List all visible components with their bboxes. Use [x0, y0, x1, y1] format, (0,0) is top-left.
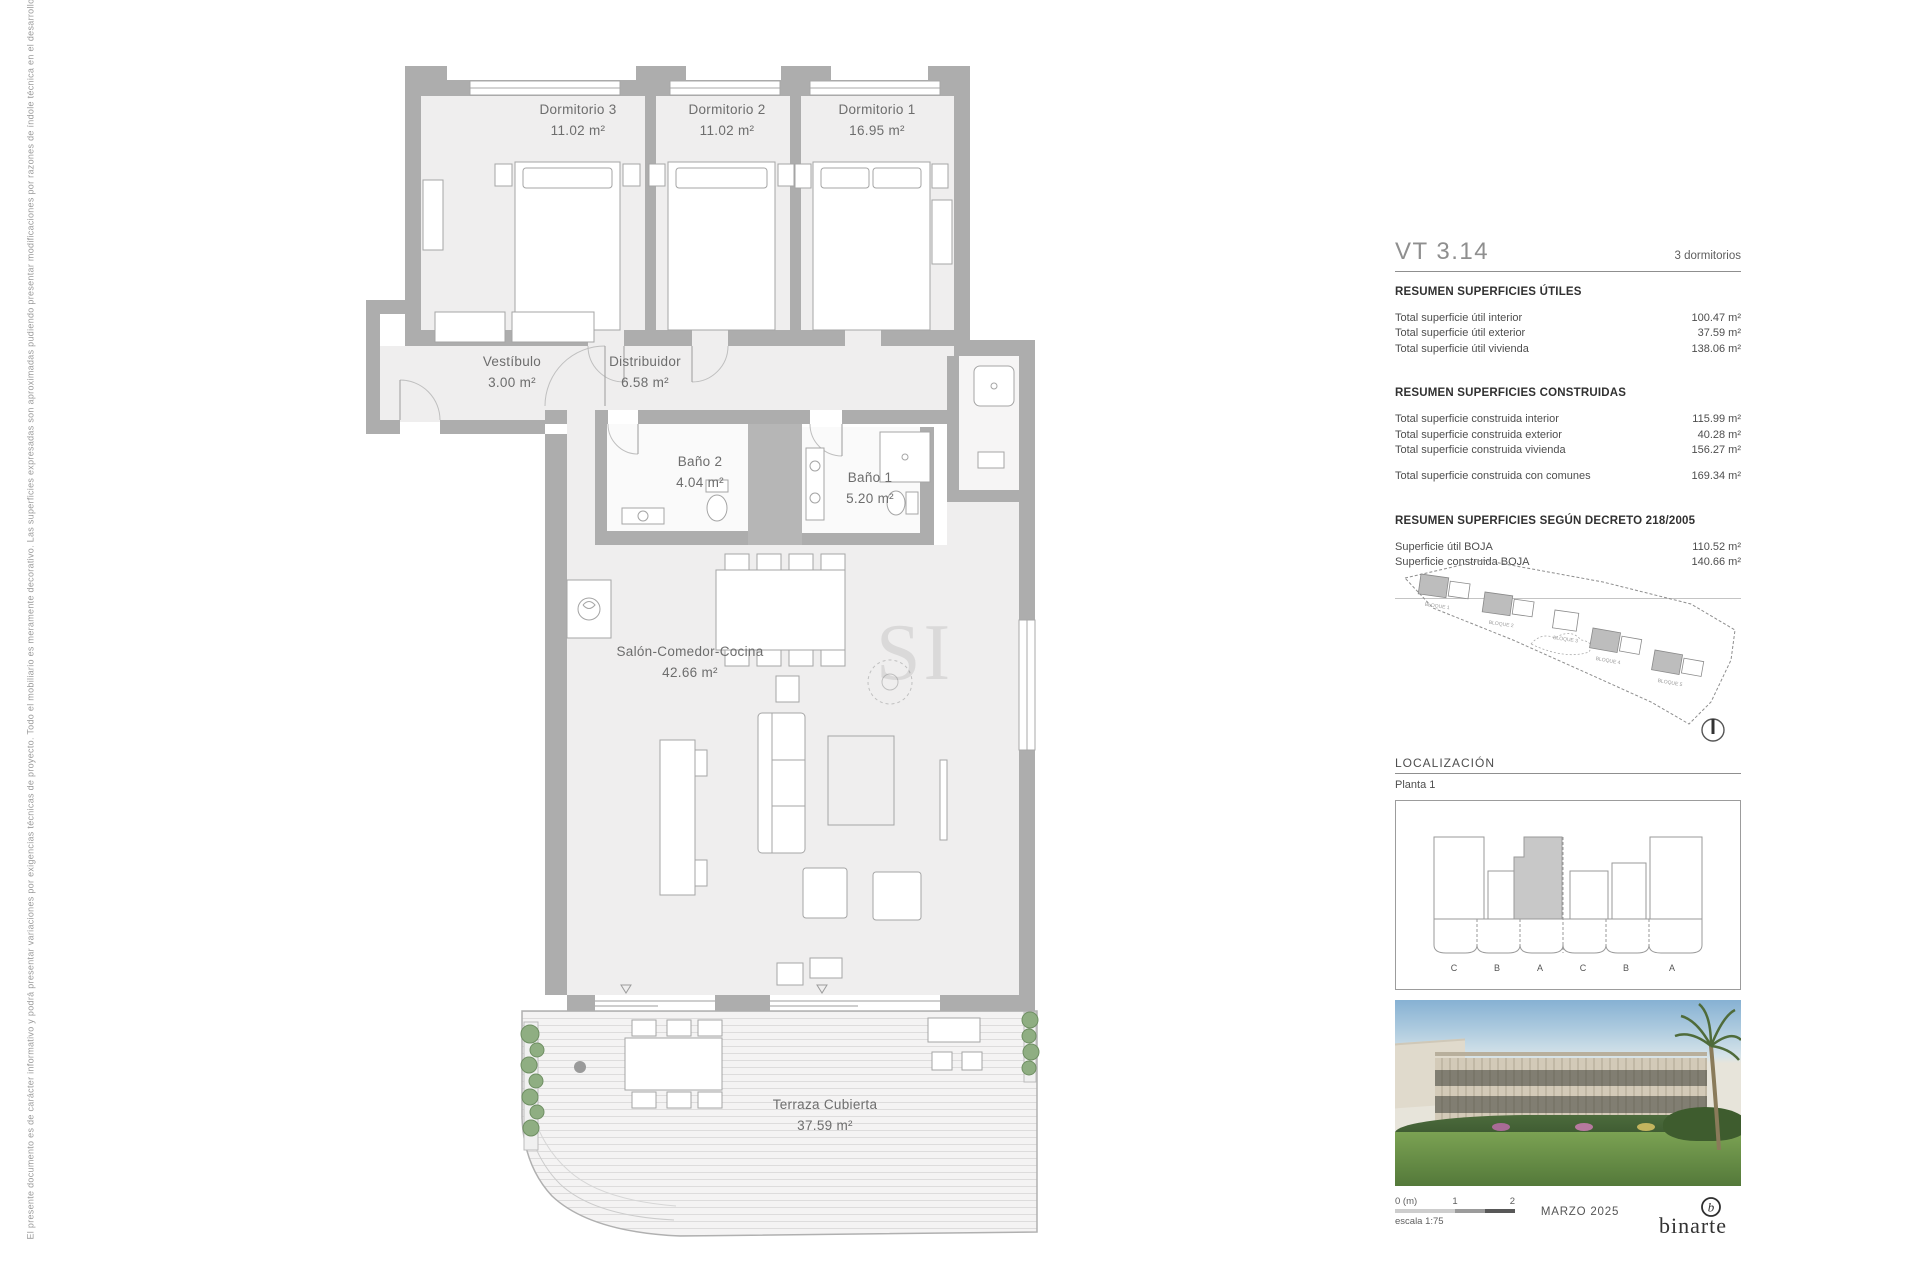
surface-row: Total superficie útil interior 100.47 m²	[1395, 311, 1741, 326]
surface-row: Total superficie útil exterior 37.59 m²	[1395, 326, 1741, 341]
row-label: Total superficie construida vivienda	[1395, 443, 1566, 458]
photo-flowers	[1492, 1123, 1510, 1131]
site-block-label: BLOQUE 4	[1595, 656, 1621, 666]
scale-zero: 0 (m)	[1395, 1196, 1417, 1207]
row-label: Total superficie construida exterior	[1395, 428, 1562, 443]
unit-letter: C	[1451, 963, 1458, 973]
row-value: 115.99 m²	[1692, 412, 1741, 427]
row-value: 100.47 m²	[1691, 311, 1741, 326]
room-name: Terraza Cubierta	[773, 1095, 878, 1116]
scale-text: escala 1:75	[1395, 1216, 1515, 1227]
row-value: 169.34 m²	[1691, 469, 1741, 484]
room-area: 11.02 m²	[539, 121, 616, 142]
planta-diagram-box: C B A C B A	[1395, 800, 1741, 990]
row-value: 156.27 m²	[1691, 443, 1741, 458]
room-name: Distribuidor	[609, 352, 681, 373]
section-title-decreto: RESUMEN SUPERFICIES SEGÚN DECRETO 218/20…	[1395, 515, 1741, 527]
section-rows-utiles: Total superficie útil interior 100.47 m²…	[1395, 311, 1741, 357]
watermark: SI	[876, 608, 953, 699]
room-label-bano-1: Baño 1 5.20 m²	[846, 468, 894, 510]
room-area: 4.04 m²	[676, 473, 724, 494]
unit-letter: C	[1580, 963, 1587, 973]
unit-header: VT 3.14 3 dormitorios	[1395, 238, 1741, 272]
room-name: Vestíbulo	[483, 352, 541, 373]
site-blocks: BLOQUE 1 BLOQUE 2 BLOQUE 3 BLOQUE 4 BLOQ…	[1416, 574, 1704, 691]
unit-letter: A	[1537, 963, 1543, 973]
section-title-utiles: RESUMEN SUPERFICIES ÚTILES	[1395, 286, 1741, 298]
room-area: 37.59 m²	[773, 1116, 878, 1137]
section-title-construidas: RESUMEN SUPERFICIES CONSTRUIDAS	[1395, 387, 1741, 399]
sheet-footer: 0 (m) 1 2 escala 1:75 MARZO 2025 b binar…	[1395, 1196, 1741, 1239]
row-label: Total superficie construida interior	[1395, 412, 1559, 427]
scale-one: 1	[1452, 1196, 1457, 1207]
room-label-terraza: Terraza Cubierta 37.59 m²	[773, 1095, 878, 1137]
palm-tree-icon	[1671, 1000, 1741, 1150]
row-label: Total superficie útil vivienda	[1395, 342, 1529, 357]
room-area: 42.66 m²	[616, 663, 763, 684]
unit-code: VT 3.14	[1395, 238, 1489, 266]
site-block-label: BLOQUE 1	[1424, 602, 1450, 611]
surface-row: Total superficie construida exterior 40.…	[1395, 428, 1741, 443]
site-block-label: BLOQUE 2	[1488, 620, 1514, 629]
room-name: Salón-Comedor-Cocina	[616, 642, 763, 663]
north-indicator-icon	[1702, 719, 1724, 741]
site-block-label: BLOQUE 3	[1553, 635, 1579, 644]
row-value: 37.59 m²	[1698, 326, 1741, 341]
room-area: 5.20 m²	[846, 489, 894, 510]
room-area: 6.58 m²	[609, 373, 681, 394]
site-block-label: BLOQUE 5	[1657, 678, 1683, 688]
room-name: Baño 2	[676, 452, 724, 473]
room-label-dormitorio-3: Dormitorio 3 11.02 m²	[539, 100, 616, 142]
room-area: 3.00 m²	[483, 373, 541, 394]
binarte-logo-text: binarte	[1659, 1213, 1727, 1239]
room-label-salon: Salón-Comedor-Cocina 42.66 m²	[616, 642, 763, 684]
sheet-date: MARZO 2025	[1541, 1206, 1619, 1218]
section-rows-construidas: Total superficie construida interior 115…	[1395, 412, 1741, 485]
room-label-distribuidor: Distribuidor 6.58 m²	[609, 352, 681, 394]
unit-letter: A	[1669, 963, 1675, 973]
room-label-vestibulo: Vestíbulo 3.00 m²	[483, 352, 541, 394]
scale-bar-graphic	[1395, 1209, 1515, 1213]
room-name: Dormitorio 3	[539, 100, 616, 121]
surface-row-total: Total superficie construida con comunes …	[1395, 469, 1741, 484]
building-render-photo	[1395, 1000, 1741, 1186]
scale-bar: 0 (m) 1 2 escala 1:75	[1395, 1196, 1515, 1227]
room-name: Dormitorio 2	[688, 100, 765, 121]
surface-row: Total superficie construida interior 115…	[1395, 412, 1741, 427]
room-label-dormitorio-1: Dormitorio 1 16.95 m²	[838, 100, 915, 142]
site-plan-sketch: BLOQUE 1 BLOQUE 2 BLOQUE 3 BLOQUE 4 BLOQ…	[1393, 552, 1743, 752]
row-value: 40.28 m²	[1698, 428, 1741, 443]
surface-row: Total superficie construida vivienda 156…	[1395, 443, 1741, 458]
unit-type: 3 dormitorios	[1675, 250, 1741, 262]
row-label: Total superficie útil interior	[1395, 311, 1522, 326]
photo-flowers	[1637, 1123, 1655, 1131]
row-value: 138.06 m²	[1691, 342, 1741, 357]
unit-letters: C B A C B A	[1451, 963, 1675, 973]
photo-roofline	[1435, 1052, 1707, 1056]
planta-label: Planta 1	[1395, 779, 1741, 791]
surface-row: Total superficie útil vivienda 138.06 m²	[1395, 342, 1741, 357]
photo-flowers	[1575, 1123, 1593, 1131]
planta-diagram: C B A C B A	[1396, 801, 1740, 987]
room-name: Baño 1	[846, 468, 894, 489]
row-label: Total superficie útil exterior	[1395, 326, 1525, 341]
legal-disclaimer: El presente documento es de carácter inf…	[26, 35, 36, 1240]
binarte-logo: b binarte	[1645, 1196, 1741, 1239]
localizacion-title: LOCALIZACIÓN	[1395, 756, 1741, 774]
unit-letter: B	[1494, 963, 1500, 973]
unit-summary-panel: VT 3.14 3 dormitorios RESUMEN SUPERFICIE…	[1395, 238, 1741, 599]
scale-two: 2	[1510, 1196, 1515, 1207]
unit-letter: B	[1623, 963, 1629, 973]
room-name: Dormitorio 1	[838, 100, 915, 121]
room-label-bano-2: Baño 2 4.04 m²	[676, 452, 724, 494]
room-area: 16.95 m²	[838, 121, 915, 142]
room-area: 11.02 m²	[688, 121, 765, 142]
room-label-dormitorio-2: Dormitorio 2 11.02 m²	[688, 100, 765, 142]
row-label: Total superficie construida con comunes	[1395, 469, 1591, 484]
localizacion-block: LOCALIZACIÓN Planta 1	[1395, 756, 1741, 791]
